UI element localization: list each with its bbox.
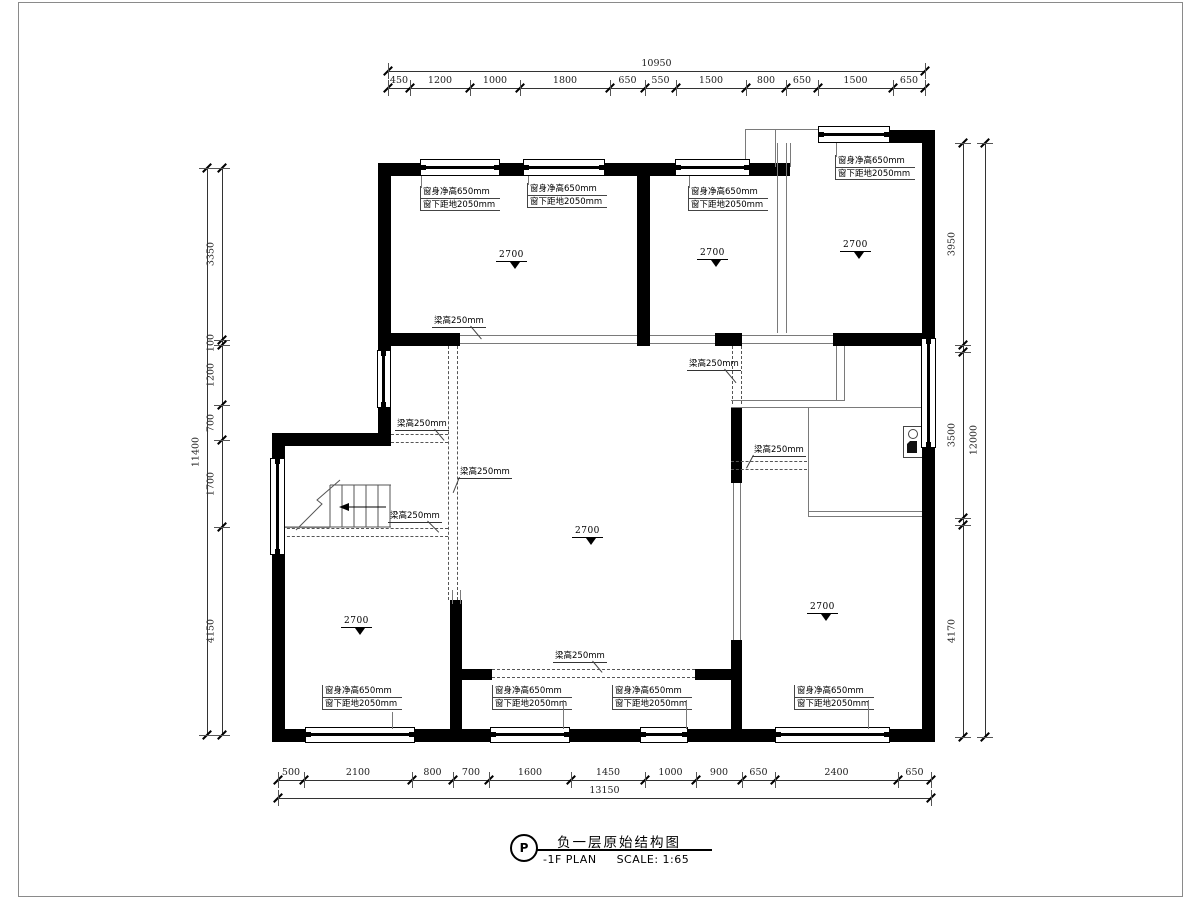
dim-extension-line (786, 80, 787, 96)
window-end-cap (884, 732, 889, 737)
window-height-label: 窗身净高650mm窗下距地2050mm (612, 685, 692, 710)
dim-label: 650 (618, 75, 636, 86)
window-end-cap (819, 132, 824, 137)
thin-line (460, 343, 637, 344)
wall-segment (890, 729, 935, 742)
ceiling-height-value: 2700 (807, 602, 838, 614)
dim-extension-line (388, 80, 389, 96)
dim-label: 3500 (947, 423, 958, 447)
plumbing-fixture (903, 426, 923, 458)
dim-extension-line (925, 80, 926, 96)
dim-label: 11400 (191, 436, 202, 466)
window-end-cap (641, 732, 646, 737)
dim-extension-line (955, 525, 971, 526)
wall-segment (637, 163, 650, 346)
beam-height-label: 梁高250mm (458, 465, 512, 479)
wall-segment (731, 640, 742, 742)
wall-segment (500, 163, 523, 176)
dim-extension-line (925, 63, 926, 79)
window-end-cap (682, 732, 687, 737)
dim-label: 650 (749, 767, 767, 778)
ceiling-height-value: 2700 (840, 240, 871, 252)
window-height-label: 窗身净高650mm窗下距地2050mm (492, 685, 572, 710)
wall-segment (272, 555, 285, 742)
window-height-line2: 窗下距地2050mm (421, 199, 500, 212)
dim-extension-line (199, 168, 215, 169)
beam-height-text: 梁高250mm (395, 417, 449, 431)
dim-extension-line (214, 440, 230, 441)
window-height-line2: 窗下距地2050mm (323, 698, 402, 711)
window-height-label: 窗身净高650mm窗下距地2050mm (322, 685, 402, 710)
label-leader-line (563, 700, 564, 729)
window-glass-line (678, 166, 747, 169)
label-leader-line (689, 176, 690, 188)
window-glass-line (308, 733, 412, 736)
dim-extension-line (775, 772, 776, 788)
dim-label: 650 (900, 75, 918, 86)
window-height-line1: 窗身净高650mm (689, 186, 768, 199)
dim-extension-line (955, 518, 971, 519)
floor-plan: 窗身净高650mm窗下距地2050mm窗身净高650mm窗下距地2050mm窗身… (0, 0, 1200, 910)
level-triangle-icon (711, 260, 721, 267)
thin-line (742, 343, 833, 344)
window-symbol (377, 350, 391, 408)
thin-line (745, 129, 818, 130)
stair-break-line (296, 480, 340, 530)
dim-label: 12000 (969, 425, 980, 455)
window-symbol (270, 458, 285, 555)
window-symbol (490, 727, 570, 743)
level-triangle-icon (821, 614, 831, 621)
fixture-body (907, 441, 917, 453)
dim-line (207, 168, 208, 735)
window-end-cap (564, 732, 569, 737)
dim-label: 550 (651, 75, 669, 86)
wall-segment (378, 163, 391, 350)
window-end-cap (494, 165, 499, 170)
beam-dashed-line (492, 677, 695, 678)
dim-extension-line (898, 772, 899, 788)
thin-line (460, 335, 637, 336)
thin-line (731, 400, 845, 401)
thin-line (650, 343, 715, 344)
dim-extension-line (931, 772, 932, 788)
dim-extension-line (199, 735, 215, 736)
ceiling-height-marker: 2700 (697, 248, 728, 260)
window-end-cap (381, 402, 386, 407)
dim-extension-line (676, 80, 677, 96)
beam-dashed-line (732, 346, 733, 404)
window-height-line1: 窗身净高650mm (795, 685, 874, 698)
wall-segment (272, 433, 391, 446)
fixture-dial-icon (908, 429, 918, 439)
dim-extension-line (696, 772, 697, 788)
wall-segment (272, 729, 305, 742)
ceiling-height-marker: 2700 (496, 250, 527, 262)
thin-line (790, 143, 791, 167)
window-glass-line (778, 733, 887, 736)
dim-label: 1500 (699, 75, 723, 86)
beam-height-text: 梁高250mm (388, 509, 442, 523)
dim-line (963, 143, 964, 737)
window-height-label: 窗身净高650mm窗下距地2050mm (835, 155, 915, 180)
wall-segment (731, 408, 742, 483)
thin-line (777, 143, 778, 333)
dim-label: 1000 (483, 75, 507, 86)
dim-extension-line (610, 80, 611, 96)
dim-label: 1200 (428, 75, 452, 86)
dim-extension-line (214, 527, 230, 528)
dim-extension-line (214, 735, 230, 736)
window-height-line1: 窗身净高650mm (493, 685, 572, 698)
window-glass-line (821, 133, 887, 136)
window-symbol (640, 727, 688, 743)
window-glass-line (276, 461, 279, 552)
window-end-cap (275, 549, 280, 554)
dim-label: 10950 (641, 58, 671, 69)
ceiling-height-value: 2700 (697, 248, 728, 260)
window-end-cap (275, 459, 280, 464)
beam-height-text: 梁高250mm (432, 314, 486, 328)
dim-label: 1600 (518, 767, 542, 778)
beam-dashed-line (282, 528, 448, 529)
label-leader-line (392, 712, 393, 729)
plan-scale: SCALE: 1:65 (617, 853, 690, 866)
window-symbol (420, 159, 500, 176)
dim-label: 1800 (553, 75, 577, 86)
label-leader-line (868, 700, 869, 729)
wall-segment (922, 448, 935, 742)
window-end-cap (776, 732, 781, 737)
window-end-cap (676, 165, 681, 170)
window-glass-line (423, 166, 497, 169)
window-end-cap (381, 351, 386, 356)
dim-label: 650 (905, 767, 923, 778)
dim-extension-line (893, 80, 894, 96)
window-height-line2: 窗下距地2050mm (836, 168, 915, 181)
dim-extension-line (955, 737, 971, 738)
beam-height-label: 梁高250mm (432, 314, 486, 328)
dim-label: 500 (282, 767, 300, 778)
beam-dashed-line (731, 469, 807, 470)
beam-height-text: 梁高250mm (687, 357, 741, 371)
window-end-cap (421, 165, 426, 170)
dim-extension-line (412, 772, 413, 788)
dim-label: 2100 (346, 767, 370, 778)
wall-segment (378, 333, 460, 346)
window-height-label: 窗身净高650mm窗下距地2050mm (420, 186, 500, 211)
dim-extension-line (214, 168, 230, 169)
wall-segment (570, 729, 640, 742)
dim-extension-line (955, 352, 971, 353)
dim-extension-line (304, 772, 305, 788)
window-height-label: 窗身净高650mm窗下距地2050mm (688, 186, 768, 211)
ceiling-height-value: 2700 (496, 250, 527, 262)
dim-extension-line (931, 790, 932, 806)
dim-label: 700 (462, 767, 480, 778)
window-end-cap (884, 132, 889, 137)
window-glass-line (382, 353, 385, 405)
dim-extension-line (977, 737, 993, 738)
window-end-cap (306, 732, 311, 737)
dim-extension-line (214, 405, 230, 406)
ceiling-height-marker: 2700 (807, 602, 838, 614)
dim-extension-line (977, 143, 993, 144)
thin-line (742, 335, 833, 336)
dim-label: 2400 (824, 767, 848, 778)
window-end-cap (744, 165, 749, 170)
dim-extension-line (470, 80, 471, 96)
ceiling-height-marker: 2700 (840, 240, 871, 252)
dim-label: 900 (710, 767, 728, 778)
wall-segment (833, 333, 922, 346)
window-height-line2: 窗下距地2050mm (689, 199, 768, 212)
beam-dashed-line (492, 669, 695, 670)
dim-extension-line (520, 80, 521, 96)
dim-extension-line (388, 63, 389, 79)
dim-label: 4170 (947, 619, 958, 643)
window-end-cap (926, 442, 931, 447)
beam-height-label: 梁高250mm (553, 649, 607, 663)
drawing-sheet: 窗身净高650mm窗下距地2050mm窗身净高650mm窗下距地2050mm窗身… (0, 0, 1200, 910)
dim-line (278, 798, 931, 799)
wall-segment (922, 130, 935, 338)
window-symbol (921, 338, 936, 448)
window-glass-line (526, 166, 602, 169)
dim-label: 1000 (658, 767, 682, 778)
staircase (282, 478, 394, 532)
window-height-line2: 窗下距地2050mm (493, 698, 572, 711)
wall-segment (450, 600, 462, 742)
ceiling-height-value: 2700 (341, 616, 372, 628)
window-height-line2: 窗下距地2050mm (795, 698, 874, 711)
dim-extension-line (453, 772, 454, 788)
beam-height-label: 梁高250mm (687, 357, 741, 371)
thin-line (460, 590, 461, 604)
dim-label: 1500 (843, 75, 867, 86)
thin-line (650, 335, 715, 336)
window-glass-line (493, 733, 567, 736)
thin-line (731, 407, 922, 408)
level-triangle-icon (854, 252, 864, 259)
thin-line (740, 483, 741, 640)
beam-dashed-line (448, 346, 449, 600)
beam-height-label: 梁高250mm (388, 509, 442, 523)
wall-segment (462, 669, 492, 680)
ceiling-height-value: 2700 (572, 526, 603, 538)
dim-extension-line (571, 772, 572, 788)
plan-subtitle: -1F PLAN SCALE: 1:65 (543, 853, 689, 866)
dim-label: 13150 (589, 785, 619, 796)
wall-segment (750, 163, 790, 176)
dim-line (388, 71, 925, 72)
window-height-line2: 窗下距地2050mm (528, 196, 607, 209)
window-height-label: 窗身净高650mm窗下距地2050mm (794, 685, 874, 710)
thin-line (808, 511, 922, 512)
dim-line (985, 143, 986, 737)
beam-dashed-line (391, 442, 448, 443)
ceiling-height-marker: 2700 (572, 526, 603, 538)
beam-dashed-line (731, 461, 807, 462)
window-height-line1: 窗身净高650mm (323, 685, 402, 698)
level-triangle-icon (355, 628, 365, 635)
window-end-cap (599, 165, 604, 170)
wall-segment (715, 333, 742, 346)
window-symbol (523, 159, 605, 176)
dim-label: 1450 (596, 767, 620, 778)
dim-label: 450 (390, 75, 408, 86)
dim-label: 3950 (947, 232, 958, 256)
title-underline (536, 849, 712, 851)
dim-line (222, 168, 223, 735)
dim-extension-line (645, 80, 646, 96)
wall-segment (695, 669, 735, 680)
dim-extension-line (746, 80, 747, 96)
dim-extension-line (955, 345, 971, 346)
label-leader-line (528, 176, 529, 185)
thin-line (836, 346, 837, 401)
window-end-cap (524, 165, 529, 170)
dim-extension-line (278, 772, 279, 788)
thin-line (808, 407, 809, 517)
window-height-label: 窗身净高650mm窗下距地2050mm (527, 183, 607, 208)
dim-line (278, 780, 931, 781)
dim-extension-line (278, 790, 279, 806)
window-glass-line (643, 733, 685, 736)
window-end-cap (926, 339, 931, 344)
window-symbol (675, 159, 750, 176)
window-symbol (775, 727, 890, 743)
window-height-line1: 窗身净高650mm (836, 155, 915, 168)
window-end-cap (491, 732, 496, 737)
thin-line (808, 516, 922, 517)
thin-line (452, 590, 453, 604)
window-end-cap (409, 732, 414, 737)
thin-line (786, 143, 787, 333)
dim-extension-line (818, 80, 819, 96)
beam-height-text: 梁高250mm (458, 465, 512, 479)
label-leader-line (421, 176, 422, 188)
dim-extension-line (489, 772, 490, 788)
dim-extension-line (410, 80, 411, 96)
window-height-line1: 窗身净高650mm (613, 685, 692, 698)
plan-title: 负一层原始结构图 (557, 831, 681, 851)
dim-extension-line (742, 772, 743, 788)
ceiling-height-marker: 2700 (341, 616, 372, 628)
beam-height-text: 梁高250mm (553, 649, 607, 663)
thin-line (745, 129, 746, 163)
window-symbol (818, 126, 890, 143)
beam-height-label: 梁高250mm (395, 417, 449, 431)
beam-dashed-line (741, 346, 742, 404)
level-triangle-icon (510, 262, 520, 269)
label-leader-line (836, 143, 837, 157)
label-leader-line (686, 700, 687, 729)
thin-line (775, 129, 776, 167)
level-triangle-icon (586, 538, 596, 545)
plan-level-code: -1F PLAN (543, 853, 597, 866)
window-symbol (305, 727, 415, 743)
dim-label: 650 (793, 75, 811, 86)
window-glass-line (927, 341, 930, 445)
beam-dashed-line (282, 536, 448, 537)
dim-extension-line (955, 143, 971, 144)
window-height-line1: 窗身净高650mm (528, 183, 607, 196)
thin-line (844, 346, 845, 401)
dim-extension-line (645, 772, 646, 788)
dim-label: 800 (757, 75, 775, 86)
beam-height-label: 梁高250mm (752, 443, 806, 457)
dim-label: 800 (423, 767, 441, 778)
thin-line (733, 483, 734, 640)
window-height-line2: 窗下距地2050mm (613, 698, 692, 711)
plan-bubble: P (510, 834, 538, 862)
window-height-line1: 窗身净高650mm (421, 186, 500, 199)
beam-height-text: 梁高250mm (752, 443, 806, 457)
wall-segment (272, 446, 285, 458)
